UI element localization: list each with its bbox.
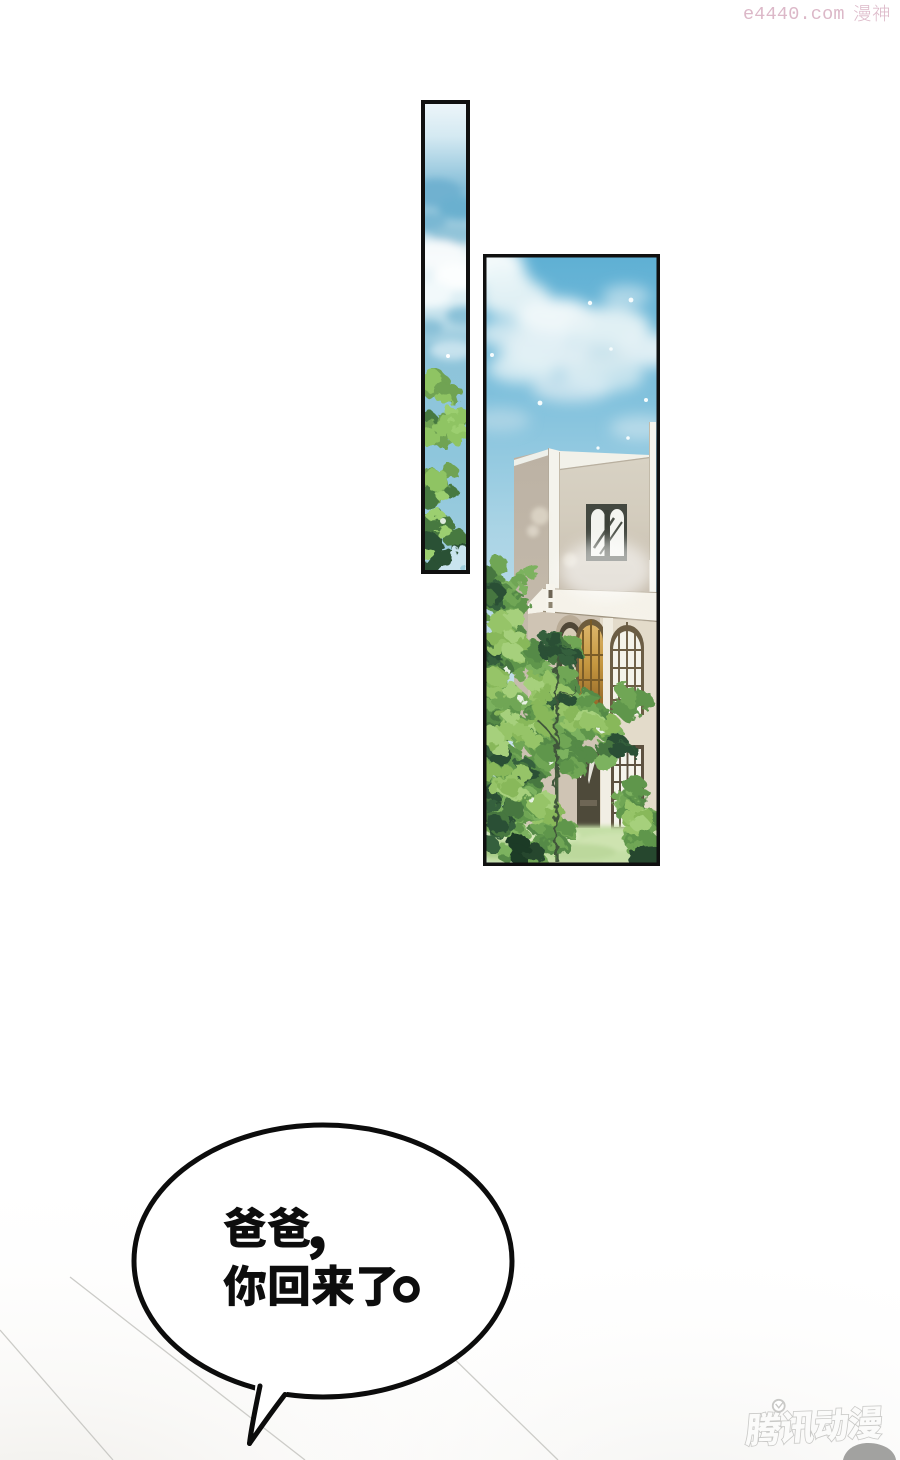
svg-text:e4440.com: e4440.com xyxy=(743,4,845,25)
